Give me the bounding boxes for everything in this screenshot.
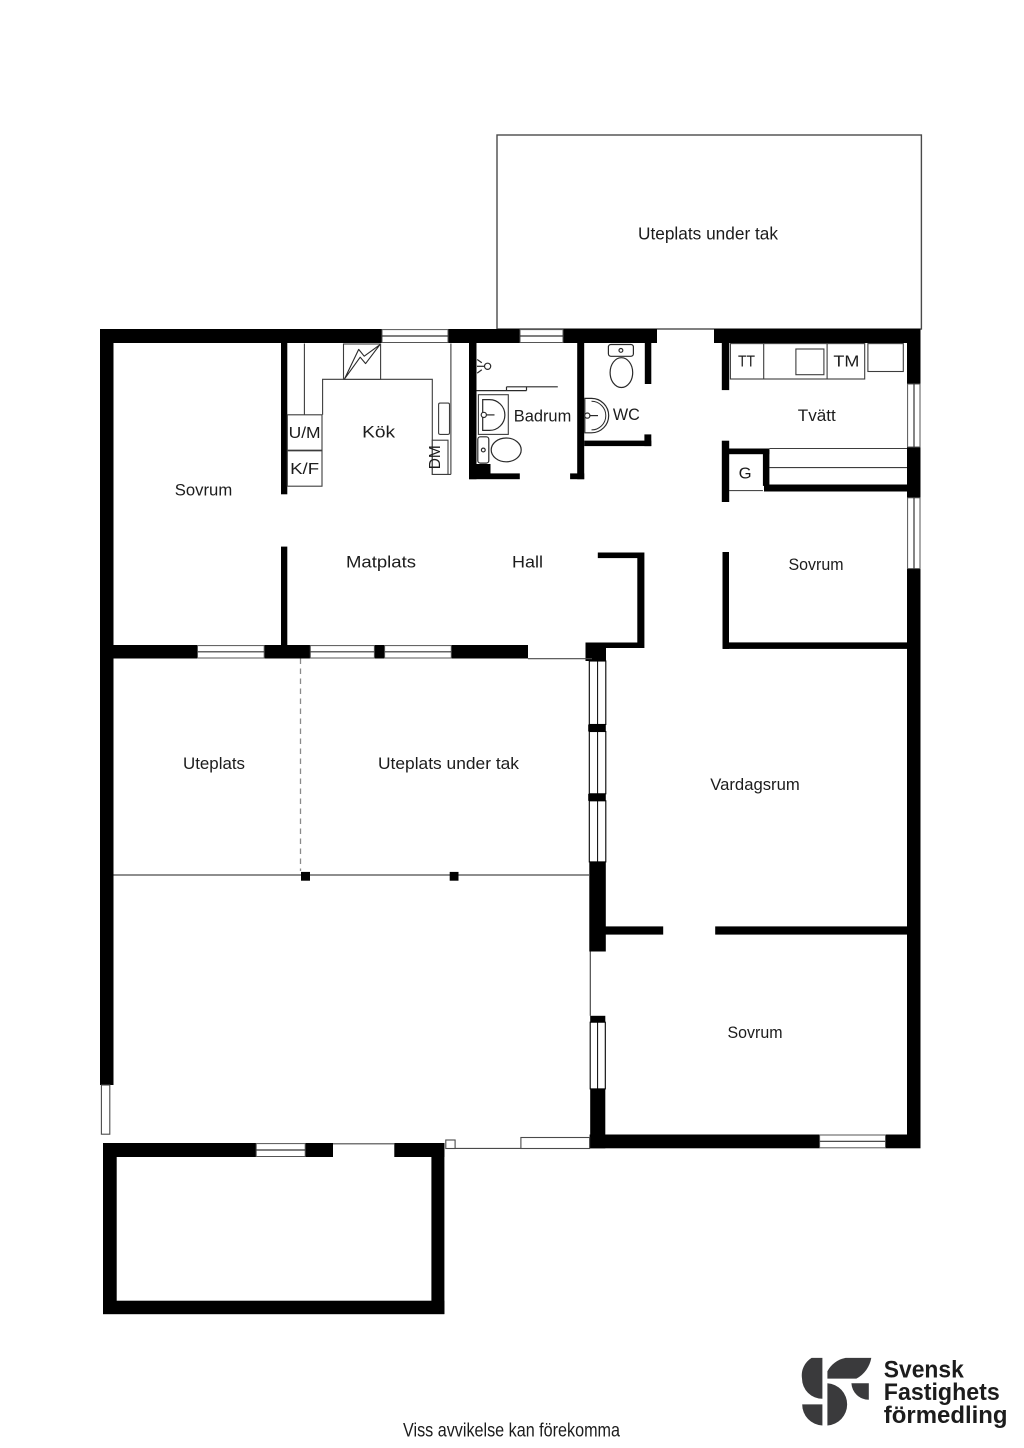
svg-text:G: G bbox=[739, 466, 752, 483]
svg-text:DM: DM bbox=[427, 445, 444, 469]
svg-text:Sovrum: Sovrum bbox=[175, 480, 233, 499]
svg-text:TT: TT bbox=[738, 354, 755, 371]
svg-text:Uteplats under tak: Uteplats under tak bbox=[378, 754, 520, 773]
svg-text:K/F: K/F bbox=[290, 461, 319, 478]
svg-text:Hall: Hall bbox=[512, 553, 543, 572]
svg-text:Vardagsrum: Vardagsrum bbox=[710, 775, 800, 794]
svg-text:Matplats: Matplats bbox=[346, 553, 416, 572]
svg-text:förmedling: förmedling bbox=[884, 1402, 1008, 1429]
svg-text:Tvätt: Tvätt bbox=[798, 406, 836, 425]
svg-text:U/M: U/M bbox=[289, 425, 321, 442]
svg-text:WC: WC bbox=[613, 405, 640, 424]
svg-text:Uteplats under tak: Uteplats under tak bbox=[638, 224, 778, 244]
svg-text:Viss avvikelse kan förekomma: Viss avvikelse kan förekomma bbox=[403, 1420, 620, 1441]
svg-text:Badrum: Badrum bbox=[514, 407, 572, 426]
svg-text:Sovrum: Sovrum bbox=[789, 555, 844, 574]
svg-text:TM: TM bbox=[833, 354, 859, 371]
svg-text:Sovrum: Sovrum bbox=[728, 1023, 783, 1042]
svg-text:Uteplats: Uteplats bbox=[183, 754, 245, 773]
svg-text:Kök: Kök bbox=[362, 422, 396, 441]
